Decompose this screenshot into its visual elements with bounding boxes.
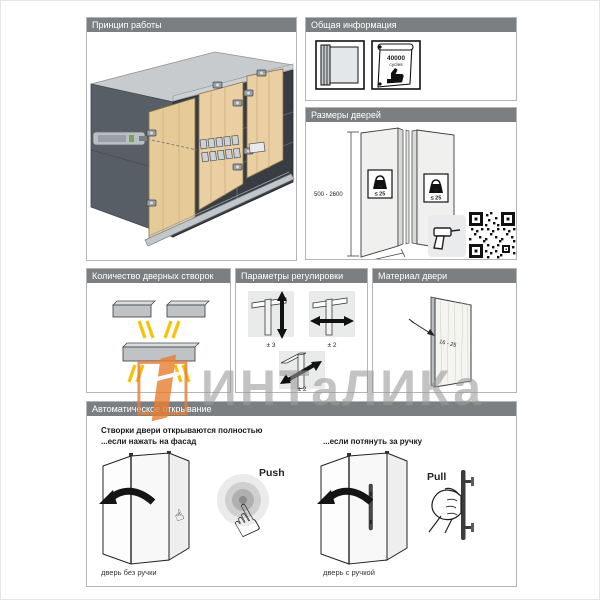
push-subheading: ...если нажать на фасад <box>101 437 196 446</box>
adjustment-illustration: ± 3 ± 2 ± 2 <box>236 283 367 392</box>
svg-text:≤ 25: ≤ 25 <box>375 192 386 198</box>
panel-general-info: Общая информация 40000 cycles <box>305 17 517 101</box>
adjust-diagonal-label: ± 2 <box>298 386 307 392</box>
adjust-vertical <box>248 291 294 339</box>
panel-door-material: Материал двери 16 - 25 <box>372 268 517 393</box>
instruction-sheet: Принцип работы <box>0 0 600 600</box>
leaf-count-illustration <box>87 283 230 392</box>
pull-illustration: Pull <box>309 448 514 566</box>
adjust-horizontal <box>309 291 355 337</box>
height-range-label: 500 - 2600 <box>314 192 343 198</box>
folding-door-with-handle <box>321 451 407 564</box>
adjust-diagonal <box>279 351 325 389</box>
height-dimension-line <box>347 132 359 256</box>
cabinet-illustration <box>87 32 296 260</box>
two-leaf-panels <box>113 301 209 338</box>
auto-opening-heading: Створки двери открываются полностью <box>101 426 263 435</box>
single-leaf-panel <box>123 343 199 382</box>
pull-label: Pull <box>427 471 446 483</box>
panel-adjustment: Параметры регулировки ± 3 <box>235 268 368 393</box>
door-material-illustration: 16 - 25 <box>373 283 516 392</box>
pull-subheading: ...если потянуть за ручку <box>323 437 422 446</box>
push-illustration: ☝ Push ☝ <box>91 448 306 566</box>
panel-adjustment-header: Параметры регулировки <box>236 269 367 283</box>
panel-door-sizes: Размеры дверей kg ≤ <box>305 107 517 260</box>
panel-general-info-header: Общая информация <box>306 18 516 32</box>
door-sizes-illustration: kg ≤ 25 ≤ 25 <box>306 122 516 259</box>
qr-code-icon <box>467 210 516 259</box>
door-right <box>244 69 283 178</box>
svg-text:≤ 25: ≤ 25 <box>431 196 442 202</box>
adjust-vertical-label: ± 3 <box>267 342 276 349</box>
door-handle-icon <box>369 484 373 530</box>
caption-with-handle: дверь с ручкой <box>323 568 375 577</box>
drill-icon <box>428 215 466 257</box>
panel-leaf-count: Количество дверных створок <box>86 268 231 393</box>
panel-principle-header: Принцип работы <box>87 18 296 32</box>
adjust-horizontal-label: ± 2 <box>328 342 337 349</box>
catalog-icon <box>316 41 364 89</box>
caption-no-handle: дверь без ручки <box>101 568 157 577</box>
panel-auto-opening: Автоматическое открывание Створки двери … <box>86 401 517 587</box>
panel-principle: Принцип работы <box>86 17 297 261</box>
general-info-icons: 40000 cycles <box>306 32 516 100</box>
endurance-cycles-icon: 40000 cycles <box>372 41 420 89</box>
panel-door-sizes-header: Размеры дверей <box>306 108 516 122</box>
panel-auto-opening-header: Автоматическое открывание <box>87 402 516 416</box>
cycles-value: 40000 <box>387 55 405 62</box>
cycles-unit: cycles <box>389 62 403 68</box>
panel-leaf-count-header: Количество дверных створок <box>87 269 230 283</box>
panel-door-material-header: Материал двери <box>373 269 516 283</box>
push-label: Push <box>259 467 285 479</box>
